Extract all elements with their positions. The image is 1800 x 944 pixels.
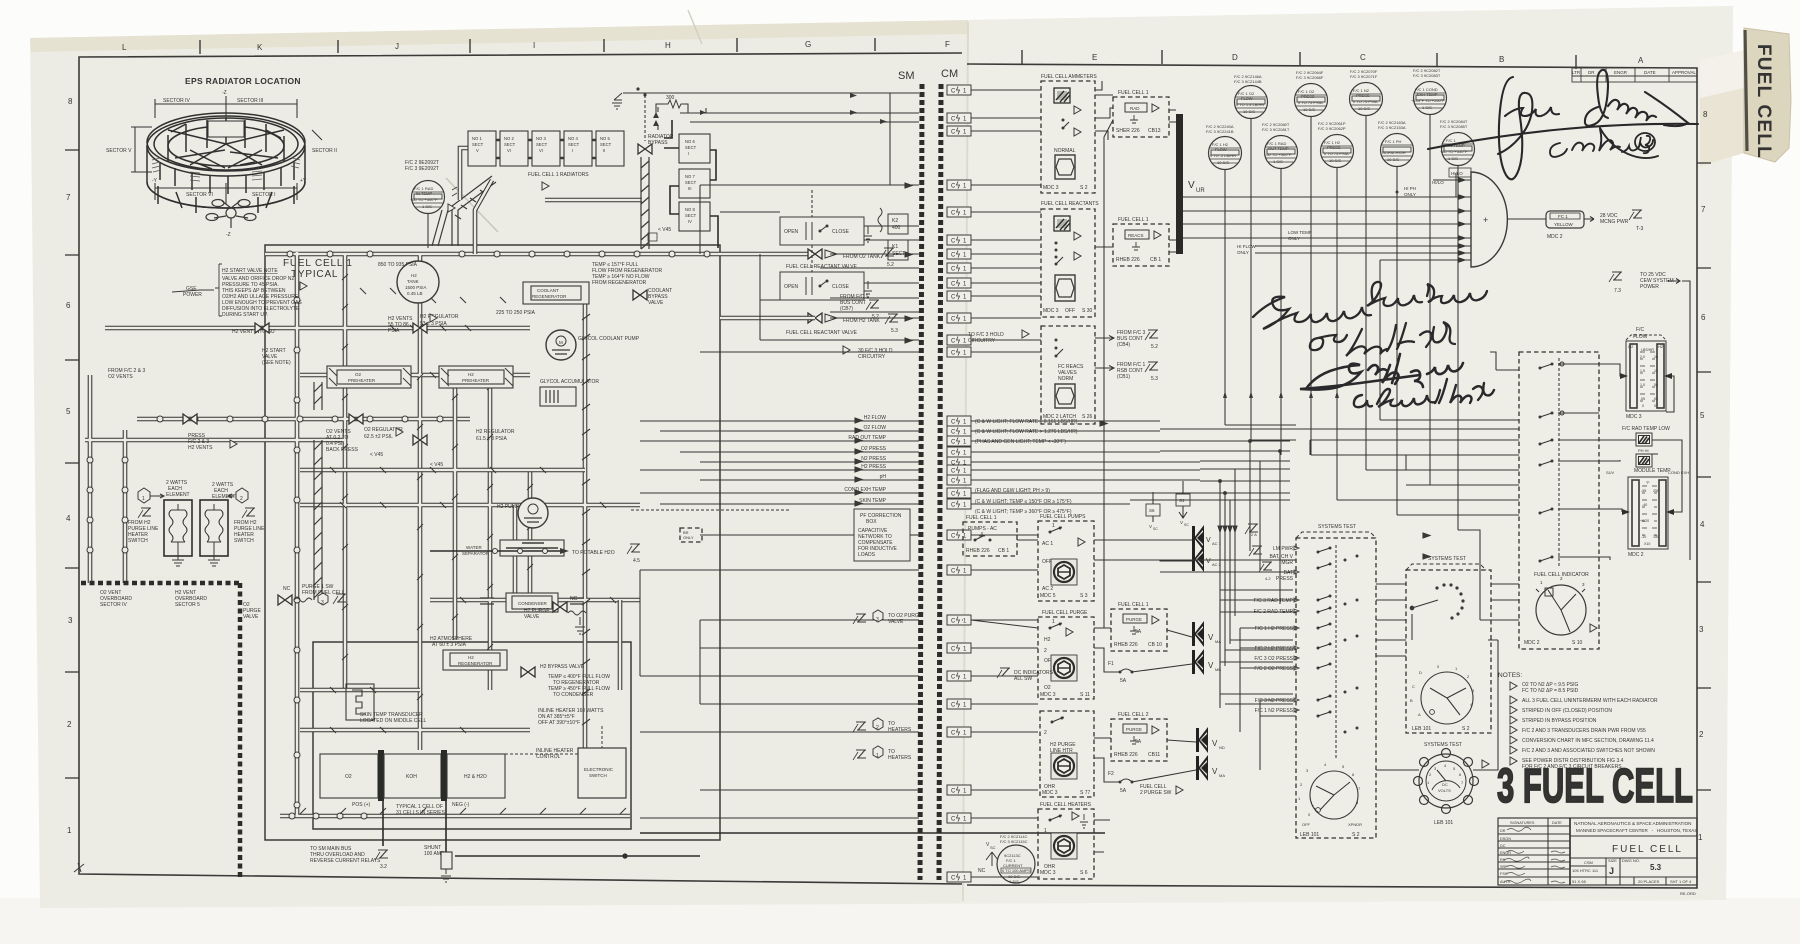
svg-text:-Y: -Y	[152, 178, 158, 184]
svg-text:BYPASS: BYPASS	[648, 140, 668, 146]
svg-text:F/C 3 O2 PRESS: F/C 3 O2 PRESS	[1254, 656, 1293, 662]
svg-text:CB 1: CB 1	[998, 548, 1009, 554]
svg-text:V: V	[476, 148, 479, 153]
svg-text:GLYCOL ACCUMULATOR: GLYCOL ACCUMULATOR	[540, 379, 599, 385]
svg-text:FUEL CELL: FUEL CELL	[1753, 44, 1774, 159]
svg-text:1.0: 1.0	[1640, 383, 1645, 387]
svg-text:2: 2	[1044, 730, 1047, 736]
svg-text:SC: SC	[1153, 527, 1158, 531]
svg-text:5.2: 5.2	[872, 314, 879, 320]
svg-text:V: V	[1206, 537, 1211, 544]
svg-text:H2: H2	[468, 372, 474, 377]
svg-text:CB11: CB11	[1148, 752, 1160, 758]
svg-text:10 S/S: 10 S/S	[1243, 109, 1255, 114]
svg-text:F/C 1 PH: F/C 1 PH	[1385, 139, 1402, 144]
svg-text:NO 4: NO 4	[568, 136, 578, 141]
svg-text:62.5 ±2 PSIL: 62.5 ±2 PSIL	[364, 434, 393, 440]
svg-text:10 S/S: 10 S/S	[1217, 160, 1229, 165]
svg-text:H2 & H2O: H2 & H2O	[464, 774, 487, 780]
svg-text:FUEL CELL: FUEL CELL	[1612, 844, 1683, 855]
svg-text:EPS RADIATOR LOCATION: EPS RADIATOR LOCATION	[185, 76, 301, 86]
svg-text:V: V	[1208, 661, 1214, 670]
svg-text:CSM: CSM	[1584, 860, 1593, 865]
svg-text:SECTOR IV: SECTOR IV	[163, 98, 191, 104]
svg-text:RHEB 226: RHEB 226	[966, 548, 990, 554]
svg-text:AC 2: AC 2	[1042, 586, 1053, 592]
svg-text:SECTOR IV: SECTOR IV	[100, 602, 128, 608]
svg-text:F/C 2 AND 3 AND ASSOCIATED SWI: F/C 2 AND 3 AND ASSOCIATED SWITCHES NOT …	[1522, 748, 1655, 754]
svg-text:M: M	[559, 340, 563, 345]
svg-text:3: 3	[321, 600, 324, 606]
svg-text:MDC 3: MDC 3	[1043, 308, 1059, 314]
svg-text:HEATERS: HEATERS	[888, 755, 912, 761]
svg-text:G: G	[805, 40, 811, 49]
svg-text:ENGR: ENGR	[1500, 851, 1511, 855]
svg-text:III: III	[688, 186, 692, 191]
svg-text:COND EXH: COND EXH	[1668, 470, 1689, 475]
svg-text:B: B	[1499, 55, 1504, 64]
svg-text:6: 6	[66, 301, 71, 310]
svg-text:EXH TEMP: EXH TEMP	[1417, 92, 1438, 97]
svg-text:LATCH: LATCH	[1060, 414, 1076, 420]
svg-text:10 S/S: 10 S/S	[1358, 106, 1370, 111]
svg-text:6: 6	[1701, 313, 1706, 322]
svg-text:RHEB 226: RHEB 226	[1114, 642, 1138, 648]
svg-text:V: V	[1188, 180, 1195, 191]
svg-text:FLOW: FLOW	[1633, 334, 1648, 340]
svg-text:3.2: 3.2	[380, 864, 387, 870]
svg-text:.12: .12	[1653, 369, 1658, 373]
svg-text:ONLY: ONLY	[1237, 250, 1249, 255]
svg-text:IN TEMP: IN TEMP	[416, 191, 432, 196]
svg-text:SRP: SRP	[1500, 865, 1508, 869]
svg-text:DR: DR	[1500, 829, 1506, 833]
svg-text:-Z: -Z	[226, 232, 231, 238]
svg-text:C: C	[1360, 53, 1366, 62]
svg-text:LM PWR: LM PWR	[1273, 546, 1293, 552]
svg-text:F/C 3 9C2115C: F/C 3 9C2115C	[1000, 839, 1028, 844]
svg-text:3: 3	[1699, 625, 1704, 634]
svg-text:V: V	[1149, 524, 1152, 529]
svg-text:SM: SM	[898, 70, 915, 82]
svg-text:S 77: S 77	[1080, 790, 1091, 796]
svg-text:VALVE: VALVE	[243, 614, 259, 620]
svg-text:1: 1	[142, 496, 145, 502]
svg-text:3 FUEL CELL: 3 FUEL CELL	[1497, 760, 1693, 813]
svg-text:.08: .08	[1653, 383, 1658, 387]
svg-text:(CB7): (CB7)	[840, 306, 853, 312]
svg-text:XPNDR: XPNDR	[1348, 822, 1362, 827]
svg-text:1 S/S: 1 S/S	[1422, 105, 1432, 110]
svg-text:8: 8	[68, 97, 73, 106]
svg-text:1: 1	[1052, 619, 1055, 625]
svg-text:SECT: SECT	[568, 142, 580, 147]
svg-text:S 26: S 26	[1082, 414, 1093, 420]
svg-text:NATIONAL AERONAUTICS & SPAC: NATIONAL AERONAUTICS & SPACE ADMINISTRAT…	[1574, 821, 1692, 826]
svg-text:0 TO .2 LB/HR: 0 TO .2 LB/HR	[1210, 153, 1236, 158]
svg-text:5.3: 5.3	[1650, 863, 1662, 872]
svg-text:PRESS: PRESS	[1327, 145, 1341, 150]
svg-text:F/C 3 9C2241B: F/C 3 9C2241B	[1206, 129, 1234, 134]
svg-text:MDC 2: MDC 2	[1524, 640, 1540, 646]
svg-text:S 2: S 2	[1080, 185, 1088, 191]
svg-text:O2 FLOW: O2 FLOW	[863, 425, 886, 431]
svg-text:SWITCH: SWITCH	[234, 538, 254, 544]
svg-text:STRIPED IN BYPASS POSITION: STRIPED IN BYPASS POSITION	[1522, 718, 1597, 724]
svg-text:H2 VENTS: H2 VENTS	[188, 445, 213, 451]
svg-text:SECTOR I: SECTOR I	[252, 192, 276, 198]
svg-text:FUEL CELL 1: FUEL CELL 1	[283, 258, 353, 269]
svg-text:PURGE 1 SW: PURGE 1 SW	[302, 584, 334, 590]
svg-text:SIGNATURES: SIGNATURES	[1510, 821, 1535, 825]
svg-text:+50 TO +300°F: +50 TO +300°F	[410, 197, 438, 202]
svg-text:(SEE NOTE): (SEE NOTE)	[262, 360, 291, 366]
svg-text:850 TO 935 PSIA: 850 TO 935 PSIA	[378, 262, 418, 268]
svg-text:MDC 2: MDC 2	[1547, 234, 1563, 240]
svg-text:SKIN TEMP: SKIN TEMP	[859, 498, 887, 504]
svg-text:SC: SC	[1184, 523, 1189, 527]
svg-text:POWER: POWER	[183, 292, 202, 298]
svg-text:LOW TEMP: LOW TEMP	[1288, 230, 1312, 235]
svg-text:CM: CM	[941, 68, 958, 80]
svg-text:SECT: SECT	[472, 142, 484, 147]
svg-text:SYSTEMS TEST: SYSTEMS TEST	[1424, 742, 1462, 748]
svg-text:S 3: S 3	[1080, 593, 1088, 599]
svg-text:PURGE: PURGE	[1126, 617, 1142, 622]
svg-text:2 PURGE SW: 2 PURGE SW	[1140, 790, 1172, 796]
svg-text:3: 3	[68, 616, 73, 625]
svg-text:HI FLOW: HI FLOW	[1237, 244, 1257, 249]
svg-text:5A: 5A	[1120, 678, 1127, 684]
svg-text:-10: -10	[1641, 535, 1646, 539]
svg-text:+145°F TO +250°F: +145°F TO +250°F	[1411, 98, 1445, 103]
svg-text:REVERSE CURRENT RELAYS: REVERSE CURRENT RELAYS	[310, 858, 381, 864]
svg-text:FROM FUEL CELL: FROM FUEL CELL	[302, 590, 345, 596]
svg-text:H2: H2	[468, 655, 474, 660]
svg-text:PH HI: PH HI	[1638, 448, 1649, 453]
svg-text:MDC 2: MDC 2	[1628, 552, 1644, 558]
svg-text:H2 BYPASS VALVE: H2 BYPASS VALVE	[540, 664, 585, 670]
svg-text:T-3: T-3	[1636, 226, 1643, 232]
svg-text:O2 PRESS: O2 PRESS	[861, 446, 887, 452]
svg-text:V: V	[1208, 633, 1214, 642]
svg-text:K2: K2	[892, 218, 898, 224]
svg-text:NOTES:: NOTES:	[1498, 672, 1522, 679]
svg-text:pH: pH	[880, 474, 887, 480]
svg-text:4.5: 4.5	[633, 558, 640, 564]
svg-text:ELECTRONIC: ELECTRONIC	[584, 767, 614, 772]
svg-text:RAD: RAD	[1130, 106, 1140, 111]
svg-text:(PHAS AND GEN LIGHT; TEMP < -3: (PHAS AND GEN LIGHT; TEMP < -30°F)	[975, 439, 1066, 445]
svg-text:HEATERS: HEATERS	[888, 727, 912, 733]
svg-text:ALL 3 FUEL CELL UNINTERMERM WI: ALL 3 FUEL CELL UNINTERMERM WITH EACH RA…	[1522, 698, 1658, 704]
svg-text:RHEB 226: RHEB 226	[1114, 752, 1138, 758]
svg-text:OFF: OFF	[1065, 308, 1075, 314]
svg-text:NC: NC	[978, 868, 986, 874]
svg-text:F/C 2 H2 PRESS: F/C 2 H2 PRESS	[1255, 646, 1294, 652]
svg-text:FUEL CELL 1: FUEL CELL 1	[1118, 602, 1149, 608]
svg-text:F/C 2 AND 3 TRANSDUCERS DRAIN: F/C 2 AND 3 TRANSDUCERS DRAIN PWR FROM V…	[1522, 728, 1646, 734]
svg-text:5: 5	[66, 407, 71, 416]
svg-text:SECT: SECT	[685, 145, 697, 150]
svg-text:NORMAL: NORMAL	[1054, 148, 1076, 154]
svg-text:MDC 5: MDC 5	[1040, 593, 1056, 599]
svg-text:ND: ND	[1219, 745, 1225, 750]
svg-text:H2: H2	[411, 273, 417, 278]
svg-text:DURING START UP.: DURING START UP.	[222, 312, 268, 318]
svg-text:1 S/S: 1 S/S	[1448, 156, 1458, 161]
svg-text:I: I	[688, 151, 689, 156]
svg-text:FC TO N2 ΔP = 8.5 PSID: FC TO N2 ΔP = 8.5 PSID	[1522, 688, 1579, 694]
svg-text:H2 FLOW: H2 FLOW	[864, 415, 887, 421]
svg-text:REGENERATOR: REGENERATOR	[532, 294, 567, 299]
svg-text:10 S/S: 10 S/S	[1387, 157, 1399, 162]
svg-text:105 HTRC 111: 105 HTRC 111	[1572, 868, 1599, 873]
svg-text:MGR: MGR	[1281, 560, 1293, 566]
svg-text:FUEL CELL PUMPS: FUEL CELL PUMPS	[1040, 514, 1086, 520]
svg-text:(C & W LIGHT; FLOW RATE > 1.27: (C & W LIGHT; FLOW RATE > 1.276 LBS/HR)	[975, 429, 1078, 435]
svg-text:WATER: WATER	[466, 545, 482, 550]
svg-text:PSIA: PSIA	[388, 328, 400, 334]
svg-text:2 A: 2 A	[1251, 532, 1257, 537]
svg-text:VI: VI	[539, 148, 543, 153]
svg-text:ONLY: ONLY	[1404, 192, 1416, 197]
svg-text:GLYCOL COOLANT PUMP: GLYCOL COOLANT PUMP	[578, 336, 640, 342]
svg-text:FUEL CELL 1: FUEL CELL 1	[966, 515, 997, 521]
svg-text:1: 1	[1044, 828, 1047, 834]
svg-text:LTR: LTR	[1572, 70, 1581, 75]
svg-text:F/C 3 9C2144B: F/C 3 9C2144B	[1234, 79, 1262, 84]
svg-text:E: E	[1092, 53, 1097, 62]
svg-text:D: D	[1419, 670, 1422, 675]
svg-text:F/C 3 9C2153A: F/C 3 9C2153A	[1378, 125, 1406, 130]
svg-text:S 10: S 10	[1572, 640, 1583, 646]
svg-text:I: I	[533, 41, 535, 50]
svg-text:FUEL CELL AMMETERS: FUEL CELL AMMETERS	[1041, 74, 1097, 80]
svg-text:FROM REGENERATOR: FROM REGENERATOR	[592, 280, 647, 286]
svg-text:0 TO 75 PSIA: 0 TO 75 PSIA	[1353, 99, 1378, 104]
svg-text:O2: O2	[345, 774, 352, 780]
svg-text:MDC 3: MDC 3	[1040, 870, 1056, 876]
svg-text:LOADS: LOADS	[858, 552, 876, 558]
svg-text:5A: 5A	[1120, 788, 1127, 794]
svg-text:MDC 2: MDC 2	[1043, 414, 1059, 420]
svg-text:VALVE: VALVE	[524, 614, 540, 620]
svg-text:5A: 5A	[1135, 739, 1142, 745]
svg-text:MDC 3: MDC 3	[1043, 185, 1059, 191]
svg-text:NO 2: NO 2	[504, 136, 514, 141]
svg-text:0 TO 75 PSIA: 0 TO 75 PSIA	[1324, 151, 1349, 156]
svg-text:NO 3: NO 3	[536, 136, 546, 141]
svg-text:SECTOR 5: SECTOR 5	[175, 602, 200, 608]
svg-text:5.3: 5.3	[891, 328, 898, 334]
svg-text:RE-ORD: RE-ORD	[1680, 891, 1696, 896]
svg-text:OUT TEMP: OUT TEMP	[1268, 146, 1289, 151]
svg-text:II: II	[603, 148, 605, 153]
svg-text:OPEN: OPEN	[784, 229, 799, 235]
svg-text:10 S/S: 10 S/S	[1303, 107, 1315, 112]
svg-text:SECTOR V: SECTOR V	[106, 148, 132, 154]
svg-text:K: K	[257, 43, 263, 52]
svg-text:DWG NO.: DWG NO.	[1622, 858, 1640, 863]
svg-text:X10: X10	[1644, 542, 1650, 546]
svg-text:PUMPS - AC: PUMPS - AC	[968, 526, 997, 532]
svg-text:AC 1: AC 1	[1042, 541, 1053, 547]
svg-text:N2 PRESS: N2 PRESS	[861, 456, 886, 462]
svg-text:2.0: 2.0	[1640, 355, 1645, 359]
svg-text:O2: O2	[1044, 685, 1051, 691]
svg-text:ALL SW: ALL SW	[1014, 676, 1032, 682]
svg-text:NO 8: NO 8	[685, 207, 695, 212]
svg-text:4: 4	[66, 514, 71, 523]
svg-text:OFF: OFF	[1042, 559, 1052, 565]
svg-text:NORM: NORM	[1058, 376, 1073, 382]
svg-text:.04: .04	[1653, 397, 1658, 401]
svg-text:SECTOR III: SECTOR III	[237, 98, 263, 104]
svg-text:250: 250	[1653, 489, 1659, 493]
svg-text:0 TO 75 PSIA: 0 TO 75 PSIA	[1298, 100, 1323, 105]
svg-text:< V45: < V45	[430, 462, 443, 468]
svg-text:STRIPED IN OFF (CLOSED) POSITI: STRIPED IN OFF (CLOSED) POSITION	[1522, 708, 1612, 714]
svg-text:DC: DC	[1442, 782, 1448, 787]
svg-text:51 X 65: 51 X 65	[1572, 879, 1587, 884]
svg-text:H2: H2	[1044, 637, 1051, 643]
svg-text:DATE: DATE	[1644, 70, 1656, 75]
svg-text:VI: VI	[507, 148, 511, 153]
svg-text:1: 1	[876, 753, 879, 759]
svg-text:225 TO 250 PSIA: 225 TO 250 PSIA	[496, 310, 536, 316]
svg-text:CONVERSION CHART IN MFC SECTIO: CONVERSION CHART IN MFC SECTION, DRAWING…	[1522, 738, 1654, 744]
svg-text:F/C RAD TEMP LOW: F/C RAD TEMP LOW	[1622, 426, 1670, 432]
svg-text:1: 1	[1052, 523, 1055, 529]
svg-text:HI/LO: HI/LO	[1451, 171, 1463, 176]
svg-text:SECT: SECT	[685, 213, 697, 218]
svg-text:F/C 3 9C2066F: F/C 3 9C2066F	[1296, 75, 1324, 80]
svg-text:NO 1: NO 1	[472, 136, 482, 141]
svg-text:1: 1	[1698, 833, 1703, 842]
svg-text:FUEL CELL 2: FUEL CELL 2	[1118, 712, 1149, 718]
svg-text:SECTOR II: SECTOR II	[312, 148, 337, 154]
svg-text:TANK: TANK	[407, 279, 419, 284]
svg-text:NEG (-): NEG (-)	[452, 802, 470, 808]
svg-text:4: 4	[1700, 520, 1705, 529]
svg-text:7: 7	[1701, 205, 1706, 214]
svg-text:CB13: CB13	[1148, 128, 1161, 134]
svg-text:SECT: SECT	[600, 142, 612, 147]
svg-text:OFF AT 390°±10°F: OFF AT 390°±10°F	[538, 720, 580, 726]
svg-text:0.45 LB: 0.45 LB	[407, 291, 423, 296]
svg-text:5.2: 5.2	[1151, 344, 1158, 350]
svg-text:DSGN: DSGN	[1500, 837, 1511, 841]
svg-text:POS (+): POS (+)	[352, 802, 371, 808]
svg-text:OFF: OFF	[1302, 822, 1311, 827]
svg-text:3: 3	[876, 617, 879, 623]
svg-text:BOX: BOX	[866, 519, 877, 525]
svg-text:TO POTABLE H2O: TO POTABLE H2O	[572, 550, 615, 556]
svg-text:.05: .05	[1640, 397, 1645, 401]
svg-text:PRESS: PRESS	[1301, 94, 1315, 99]
svg-text:ONLY: ONLY	[683, 535, 694, 540]
svg-text:FROM O2 TANK: FROM O2 TANK	[843, 254, 881, 260]
svg-text:J: J	[1609, 866, 1614, 876]
svg-text:D: D	[1232, 53, 1238, 62]
svg-text:V: V	[1206, 558, 1211, 565]
svg-text:RHEB 226: RHEB 226	[1116, 257, 1140, 263]
svg-text:LEB 101: LEB 101	[1412, 726, 1431, 732]
svg-text:O2: O2	[1628, 344, 1634, 349]
svg-text:L: L	[122, 43, 127, 52]
svg-text:NC: NC	[283, 586, 291, 592]
svg-text:S 30: S 30	[1082, 308, 1093, 314]
svg-text:F: F	[945, 40, 950, 49]
svg-text:MDC 3: MDC 3	[1042, 790, 1058, 796]
svg-text:1 S/S: 1 S/S	[1273, 159, 1283, 164]
svg-text:VOLTS: VOLTS	[1438, 788, 1451, 793]
svg-text:+: +	[1483, 215, 1488, 225]
svg-text:H: H	[665, 41, 671, 50]
svg-text:SC: SC	[990, 845, 996, 850]
svg-text:S 2: S 2	[1352, 832, 1360, 838]
svg-text:H2 START VALVE NOTE: H2 START VALVE NOTE	[222, 268, 278, 274]
svg-text:VALVE: VALVE	[648, 300, 664, 306]
svg-text:DR: DR	[1588, 70, 1595, 75]
svg-text:CIRCUITRY: CIRCUITRY	[968, 338, 996, 344]
svg-text:UR: UR	[1196, 188, 1205, 194]
svg-text:7.3: 7.3	[1614, 288, 1621, 294]
svg-text:A: A	[1418, 712, 1421, 717]
svg-text:PREHEATER: PREHEATER	[462, 378, 490, 383]
svg-text:SYSTEMS TEST: SYSTEMS TEST	[1318, 524, 1356, 530]
svg-text:H2 REGULATOR: H2 REGULATOR	[420, 314, 459, 320]
svg-text:V: V	[1180, 520, 1183, 525]
svg-text:NO 7: NO 7	[685, 174, 695, 179]
svg-text:0: 0	[1654, 404, 1656, 408]
svg-text:RAD OUT TEMP: RAD OUT TEMP	[848, 435, 886, 441]
svg-text:F/C 3 9C2083T: F/C 3 9C2083T	[1413, 73, 1441, 78]
svg-text:AT 60 ± 3 PSIA: AT 60 ± 3 PSIA	[432, 642, 467, 648]
svg-text:SYSTEMS TEST: SYSTEMS TEST	[1428, 556, 1466, 562]
svg-text:4.2: 4.2	[1265, 576, 1271, 581]
svg-text:1.5: 1.5	[1640, 369, 1645, 373]
svg-text:S 6: S 6	[1080, 870, 1088, 876]
svg-text:2: 2	[1699, 730, 1704, 739]
svg-text:-50 TO +300°F: -50 TO +300°F	[1265, 152, 1292, 157]
svg-text:+0/20: +0/20	[1640, 519, 1649, 523]
svg-text:1: 1	[67, 826, 72, 835]
svg-text:< V45: < V45	[370, 452, 383, 458]
svg-text:5: 5	[1700, 411, 1705, 420]
svg-text:S 2: S 2	[1462, 726, 1470, 732]
svg-text:FUEL CELL REACTANT VALVE: FUEL CELL REACTANT VALVE	[786, 330, 858, 336]
svg-text:OPEN: OPEN	[784, 284, 799, 290]
svg-text:KOH: KOH	[406, 774, 417, 780]
svg-text:ONLY: ONLY	[1288, 236, 1300, 241]
svg-text:O2: O2	[355, 372, 362, 377]
svg-text:10 S/S: 10 S/S	[1329, 158, 1341, 163]
svg-text:5.2: 5.2	[887, 262, 894, 268]
svg-text:SECT: SECT	[536, 142, 548, 147]
svg-text:DATE: DATE	[1552, 821, 1562, 825]
svg-text:-Z: -Z	[222, 90, 227, 96]
svg-text:S1: S1	[1179, 498, 1185, 503]
svg-text:FUEL CELL HEATERS: FUEL CELL HEATERS	[1040, 802, 1092, 808]
svg-text:J: J	[395, 42, 399, 51]
svg-text:H2 PUMP: H2 PUMP	[497, 504, 520, 510]
svg-text:F/C: F/C	[1636, 327, 1644, 333]
svg-text:0 TO 100 AMPS: 0 TO 100 AMPS	[1002, 868, 1031, 873]
svg-text:SWITCH: SWITCH	[128, 538, 148, 544]
svg-text:300: 300	[666, 95, 675, 101]
